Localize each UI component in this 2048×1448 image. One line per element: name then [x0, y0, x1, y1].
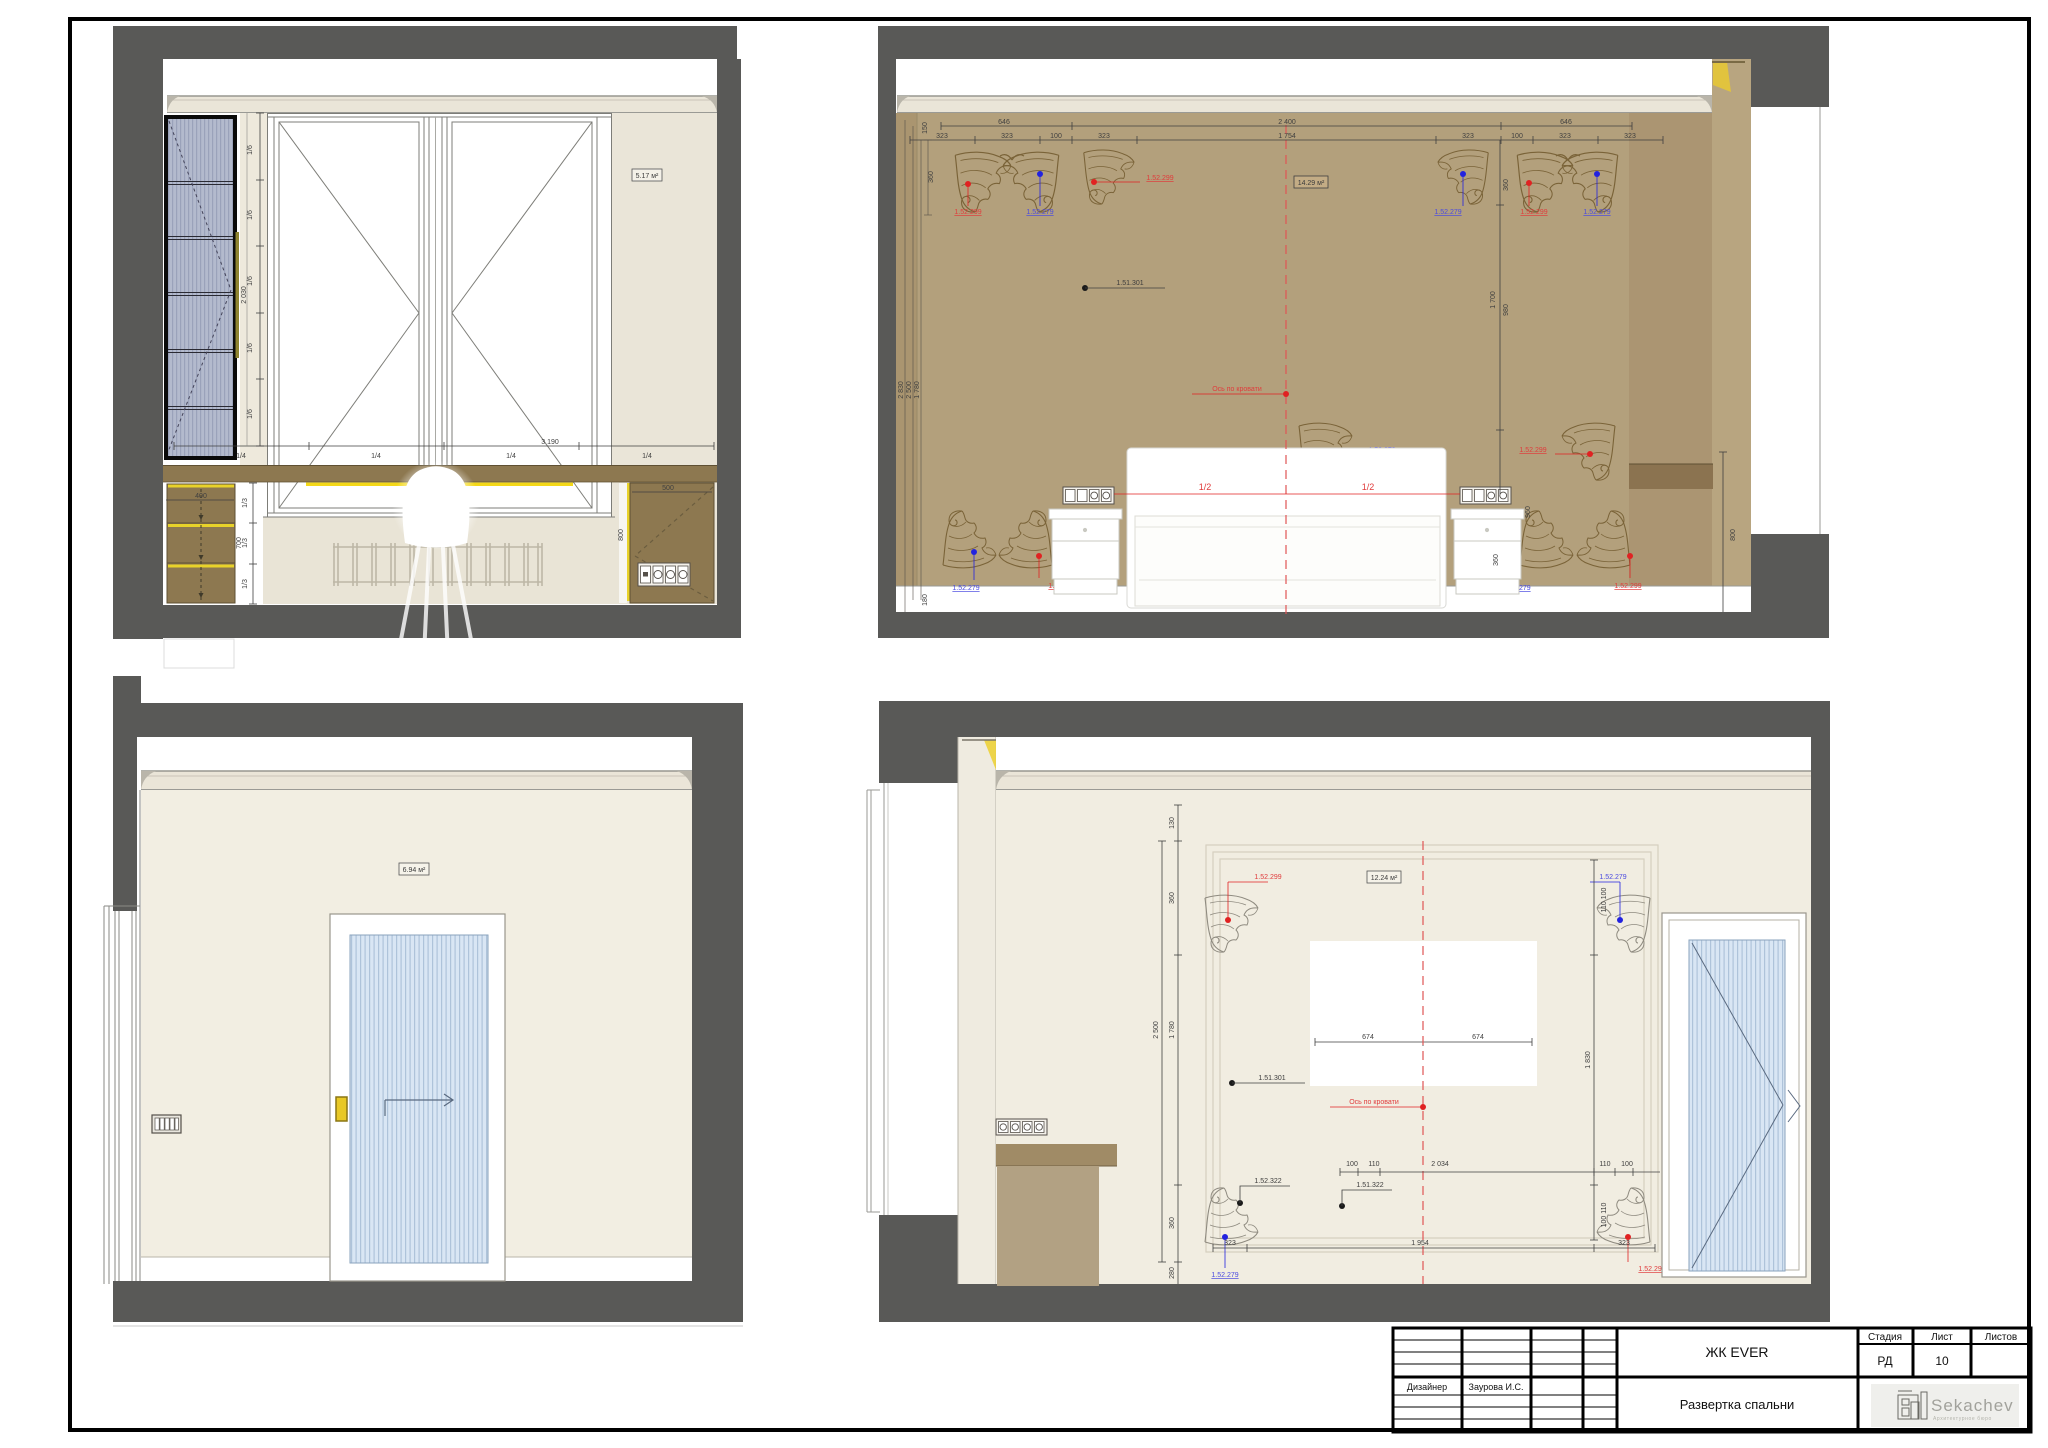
- svg-text:100: 100: [1621, 1161, 1633, 1168]
- svg-text:1/6: 1/6: [247, 145, 254, 155]
- svg-text:Лист: Лист: [1931, 1332, 1953, 1343]
- svg-text:1/4: 1/4: [371, 453, 381, 460]
- svg-text:500: 500: [662, 485, 674, 492]
- svg-text:1 780: 1 780: [1169, 1021, 1176, 1039]
- svg-text:1.52.279: 1.52.279: [1599, 874, 1626, 881]
- svg-text:5.17 м²: 5.17 м²: [636, 173, 659, 180]
- svg-text:1/2: 1/2: [1199, 482, 1212, 492]
- svg-text:800: 800: [618, 529, 625, 541]
- svg-text:1/4: 1/4: [642, 453, 652, 460]
- svg-text:323: 323: [1624, 133, 1636, 140]
- svg-text:1.52.279: 1.52.279: [952, 585, 979, 592]
- svg-text:1.52.299: 1.52.299: [1254, 874, 1281, 881]
- svg-text:Заурова И.С.: Заурова И.С.: [1469, 1382, 1524, 1392]
- svg-text:1/3: 1/3: [242, 579, 249, 589]
- svg-text:10: 10: [1935, 1354, 1949, 1368]
- svg-text:1 700: 1 700: [1490, 291, 1497, 309]
- svg-text:130: 130: [1169, 817, 1176, 829]
- svg-text:100: 100: [1050, 133, 1062, 140]
- svg-text:323: 323: [936, 133, 948, 140]
- svg-text:360: 360: [1169, 892, 1176, 904]
- svg-text:1.52.279: 1.52.279: [1583, 209, 1610, 216]
- svg-text:1.51.301: 1.51.301: [1258, 1075, 1285, 1082]
- svg-text:1.52.279: 1.52.279: [1211, 1272, 1238, 1279]
- svg-text:2 400: 2 400: [1278, 119, 1296, 126]
- svg-text:1 754: 1 754: [1278, 133, 1296, 140]
- svg-text:646: 646: [998, 119, 1010, 126]
- svg-text:2 500: 2 500: [906, 381, 913, 399]
- svg-text:323: 323: [1224, 1240, 1236, 1247]
- svg-text:323: 323: [1098, 133, 1110, 140]
- svg-text:674: 674: [1362, 1034, 1374, 1041]
- svg-text:110: 110: [1368, 1161, 1379, 1168]
- svg-text:3 190: 3 190: [541, 439, 559, 446]
- svg-text:1.52.299: 1.52.299: [1519, 447, 1546, 454]
- svg-text:1/3: 1/3: [242, 538, 249, 548]
- svg-text:323: 323: [1001, 133, 1013, 140]
- svg-text:180: 180: [922, 594, 929, 606]
- svg-text:12.24 м²: 12.24 м²: [1371, 875, 1398, 882]
- svg-text:1.52.299: 1.52.299: [954, 209, 981, 216]
- svg-text:323: 323: [1559, 133, 1571, 140]
- svg-text:Ось по кровати: Ось по кровати: [1349, 1099, 1399, 1106]
- svg-text:1/6: 1/6: [247, 210, 254, 220]
- svg-text:360: 360: [1169, 1217, 1176, 1229]
- svg-text:2 034: 2 034: [1431, 1161, 1449, 1168]
- svg-text:100: 100: [1511, 133, 1523, 140]
- svg-text:280: 280: [1169, 1267, 1176, 1279]
- svg-text:100: 100: [1346, 1161, 1358, 1168]
- svg-text:100 110: 100 110: [1601, 1203, 1608, 1228]
- svg-text:674: 674: [1472, 1034, 1484, 1041]
- svg-text:2 500: 2 500: [1153, 1021, 1160, 1039]
- svg-text:1.52.299: 1.52.299: [1614, 583, 1641, 590]
- svg-text:1/6: 1/6: [247, 276, 254, 286]
- svg-text:110 100: 110 100: [1601, 888, 1608, 913]
- svg-text:1/3: 1/3: [242, 498, 249, 508]
- svg-text:360: 360: [928, 171, 935, 183]
- svg-text:110: 110: [1599, 1161, 1610, 1168]
- svg-text:РД: РД: [1877, 1354, 1892, 1368]
- svg-text:Листов: Листов: [1985, 1332, 2018, 1343]
- svg-text:Стадия: Стадия: [1868, 1332, 1902, 1343]
- svg-text:1 830: 1 830: [1585, 1051, 1592, 1069]
- svg-text:Архитектурное бюро: Архитектурное бюро: [1933, 1416, 1992, 1422]
- svg-text:6.94 м²: 6.94 м²: [403, 867, 426, 874]
- svg-text:Ось по кровати: Ось по кровати: [1212, 386, 1262, 393]
- svg-text:360: 360: [1493, 554, 1500, 566]
- svg-text:980: 980: [1503, 304, 1510, 316]
- svg-text:Sekachev: Sekachev: [1931, 1396, 2014, 1415]
- svg-text:1.52.299: 1.52.299: [1146, 175, 1173, 182]
- svg-text:1 780: 1 780: [914, 381, 921, 399]
- svg-text:1.51.301: 1.51.301: [1116, 280, 1143, 287]
- svg-text:Развертка спальни: Развертка спальни: [1680, 1397, 1795, 1412]
- svg-text:1/6: 1/6: [247, 343, 254, 353]
- svg-text:323: 323: [1462, 133, 1474, 140]
- svg-text:400: 400: [195, 493, 207, 500]
- svg-text:646: 646: [1560, 119, 1572, 126]
- svg-text:2 830: 2 830: [898, 381, 905, 399]
- svg-text:800: 800: [1730, 529, 1737, 541]
- svg-text:323: 323: [1618, 1240, 1630, 1247]
- svg-text:1.52.279: 1.52.279: [1434, 209, 1461, 216]
- svg-text:1.51.322: 1.51.322: [1356, 1182, 1383, 1189]
- svg-text:1.52.279: 1.52.279: [1026, 209, 1053, 216]
- svg-text:1 954: 1 954: [1411, 1240, 1429, 1247]
- svg-text:1/4: 1/4: [506, 453, 516, 460]
- svg-text:1/6: 1/6: [247, 409, 254, 419]
- svg-text:1/4: 1/4: [236, 453, 246, 460]
- svg-text:360: 360: [1503, 179, 1510, 191]
- svg-text:Дизайнер: Дизайнер: [1407, 1382, 1447, 1392]
- svg-text:1/2: 1/2: [1362, 482, 1375, 492]
- svg-text:14.29 м²: 14.29 м²: [1298, 180, 1325, 187]
- svg-text:2 030: 2 030: [241, 286, 248, 304]
- svg-text:700: 700: [236, 537, 243, 549]
- svg-text:1.52.322: 1.52.322: [1254, 1178, 1281, 1185]
- svg-text:1.52.299: 1.52.299: [1520, 209, 1547, 216]
- svg-text:150: 150: [922, 122, 929, 134]
- svg-text:ЖК EVER: ЖК EVER: [1705, 1344, 1768, 1360]
- svg-text:960: 960: [1525, 506, 1532, 518]
